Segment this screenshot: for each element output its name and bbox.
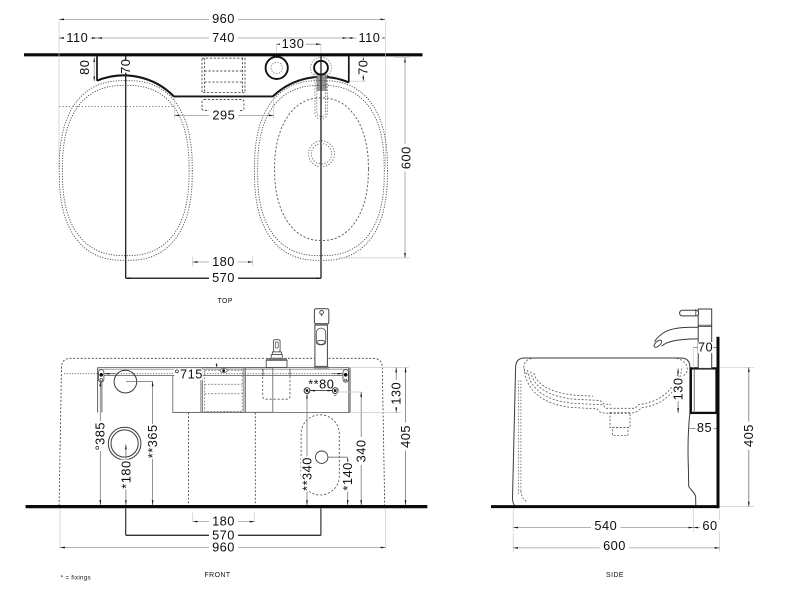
svg-text:*140: *140 xyxy=(340,462,355,490)
svg-text:70: 70 xyxy=(356,60,371,75)
svg-text:60: 60 xyxy=(702,518,717,533)
svg-text:130: 130 xyxy=(282,36,305,51)
svg-text:960: 960 xyxy=(212,11,235,26)
svg-text:740: 740 xyxy=(212,30,235,45)
svg-text:*180: *180 xyxy=(118,460,133,488)
svg-text:85: 85 xyxy=(697,420,712,435)
svg-text:FRONT: FRONT xyxy=(205,572,231,579)
svg-text:TOP: TOP xyxy=(218,298,233,305)
svg-text:110: 110 xyxy=(358,30,380,45)
svg-text:540: 540 xyxy=(594,518,617,533)
svg-text:°385: °385 xyxy=(93,422,108,450)
svg-text:**340: **340 xyxy=(299,457,314,491)
svg-text:600: 600 xyxy=(399,146,414,169)
svg-text:SIDE: SIDE xyxy=(606,572,624,579)
svg-text:**365: **365 xyxy=(145,424,160,458)
svg-text:340: 340 xyxy=(354,439,369,462)
svg-text:405: 405 xyxy=(741,424,756,447)
svg-text:80: 80 xyxy=(77,60,92,75)
svg-text:600: 600 xyxy=(603,538,626,553)
svg-text:* = fixings: * = fixings xyxy=(61,575,91,582)
svg-text:110: 110 xyxy=(66,30,88,45)
svg-text:960: 960 xyxy=(212,540,235,555)
svg-text:130: 130 xyxy=(389,382,404,405)
svg-text:130: 130 xyxy=(671,377,686,400)
svg-text:70: 70 xyxy=(698,339,713,354)
svg-text:**80: **80 xyxy=(308,377,334,392)
svg-text:°715: °715 xyxy=(174,366,202,381)
svg-text:180: 180 xyxy=(212,254,235,269)
svg-text:570: 570 xyxy=(212,270,235,285)
svg-text:405: 405 xyxy=(398,425,413,448)
svg-text:70: 70 xyxy=(118,59,133,74)
svg-text:295: 295 xyxy=(212,107,235,122)
